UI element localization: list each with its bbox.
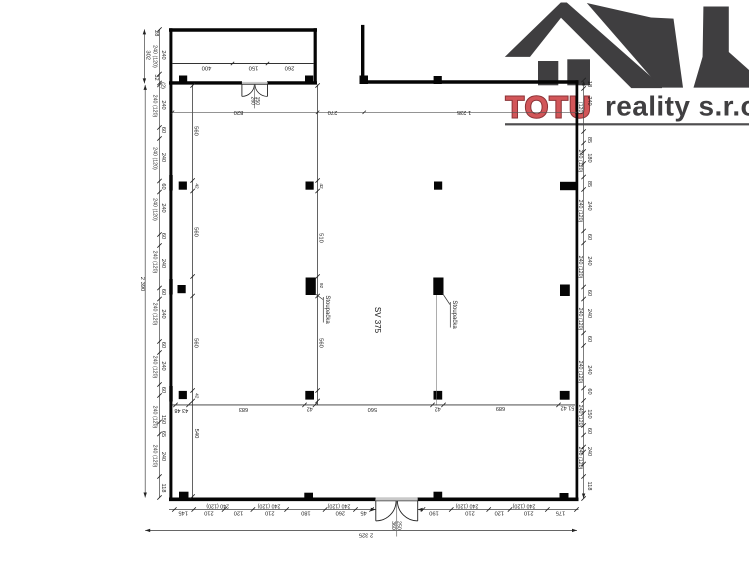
svg-text:510: 510: [317, 233, 323, 243]
svg-text:240 (120): 240 (120): [152, 45, 158, 68]
svg-text:42: 42: [435, 405, 441, 411]
svg-text:683: 683: [239, 406, 248, 412]
svg-text:210: 210: [524, 510, 534, 516]
svg-text:240 (120): 240 (120): [327, 502, 350, 508]
svg-text:240 (120): 240 (120): [152, 251, 158, 274]
svg-text:240 (120): 240 (120): [577, 405, 583, 428]
svg-text:175: 175: [556, 510, 566, 516]
svg-text:60: 60: [586, 234, 592, 240]
svg-text:240 (120): 240 (120): [577, 200, 583, 223]
svg-text:302: 302: [145, 50, 151, 60]
svg-text:240 (120): 240 (120): [577, 361, 583, 384]
svg-text:51 42: 51 42: [561, 404, 575, 410]
svg-text:240 (120): 240 (120): [577, 308, 583, 331]
svg-text:60: 60: [160, 233, 166, 239]
svg-text:240 (120): 240 (120): [206, 502, 229, 508]
svg-text:60: 60: [160, 289, 166, 295]
svg-text:240 (120): 240 (120): [152, 356, 158, 379]
svg-text:240: 240: [160, 203, 166, 212]
svg-text:240: 240: [586, 201, 592, 210]
svg-text:360: 360: [390, 521, 396, 530]
svg-text:60: 60: [160, 342, 166, 348]
svg-text:2 390: 2 390: [139, 277, 145, 292]
svg-text:42: 42: [318, 183, 324, 189]
svg-text:60: 60: [160, 387, 166, 393]
svg-text:240 (120): 240 (120): [577, 256, 583, 279]
svg-text:560: 560: [368, 406, 377, 412]
svg-text:260: 260: [285, 64, 295, 70]
svg-text:240: 240: [160, 100, 166, 109]
svg-text:240 (120): 240 (120): [577, 150, 583, 173]
svg-text:60: 60: [586, 388, 592, 394]
svg-text:240: 240: [586, 96, 592, 105]
svg-text:540: 540: [193, 429, 199, 439]
svg-text:400: 400: [202, 64, 212, 70]
svg-text:Stoupačka: Stoupačka: [324, 295, 330, 324]
svg-text:240 (120): 240 (120): [577, 447, 583, 470]
svg-text:240 (120): 240 (120): [257, 502, 280, 508]
svg-text:120: 120: [495, 510, 505, 516]
svg-text:150: 150: [254, 97, 260, 106]
svg-text:43 48: 43 48: [174, 407, 188, 413]
svg-text:65: 65: [160, 431, 166, 437]
svg-text:240 (120): 240 (120): [152, 303, 158, 326]
svg-text:85: 85: [586, 181, 592, 187]
svg-text:240: 240: [586, 309, 592, 318]
svg-text:240: 240: [160, 309, 166, 318]
svg-text:190: 190: [429, 510, 439, 516]
svg-text:240 (120): 240 (120): [512, 502, 535, 508]
svg-text:92: 92: [318, 283, 324, 289]
svg-text:28: 28: [153, 30, 159, 36]
svg-text:60: 60: [160, 183, 166, 189]
svg-text:240 (120): 240 (120): [152, 406, 158, 429]
svg-text:240: 240: [160, 452, 166, 461]
svg-text:210: 210: [265, 510, 275, 516]
svg-text:560: 560: [193, 126, 199, 136]
svg-text:60: 60: [160, 127, 166, 133]
svg-text:240: 240: [160, 259, 166, 268]
svg-text:240 (120): 240 (120): [152, 445, 158, 468]
svg-text:240: 240: [160, 361, 166, 370]
svg-text:60: 60: [586, 290, 592, 296]
svg-text:150: 150: [249, 64, 259, 70]
svg-text:32: 32: [153, 74, 159, 80]
svg-text:260: 260: [336, 510, 346, 516]
svg-text:42: 42: [307, 405, 313, 411]
svg-text:2 325: 2 325: [359, 531, 374, 537]
svg-text:Stoupačka: Stoupačka: [451, 300, 457, 329]
svg-text:42: 42: [194, 183, 200, 189]
svg-text:180: 180: [301, 510, 311, 516]
svg-text:145: 145: [178, 510, 188, 516]
svg-text:(2): (2): [160, 82, 166, 89]
svg-text:689: 689: [496, 405, 505, 411]
svg-text:(120): (120): [577, 102, 583, 115]
svg-text:85: 85: [586, 137, 592, 143]
svg-text:reality s.r.o.: reality s.r.o.: [605, 91, 749, 122]
svg-text:240: 240: [586, 447, 592, 456]
svg-text:18: 18: [586, 81, 592, 87]
svg-text:120: 120: [234, 510, 244, 516]
svg-text:60: 60: [586, 428, 592, 434]
svg-text:45: 45: [360, 510, 366, 516]
svg-text:210: 210: [204, 510, 214, 516]
svg-text:240: 240: [586, 365, 592, 374]
svg-text:820: 820: [234, 109, 244, 115]
svg-text:250: 250: [396, 521, 402, 530]
svg-text:118: 118: [586, 482, 592, 491]
svg-text:240 (120): 240 (120): [152, 95, 158, 118]
svg-text:560: 560: [193, 338, 199, 348]
svg-text:240: 240: [160, 50, 166, 59]
svg-text:118: 118: [160, 484, 166, 493]
svg-text:560: 560: [193, 227, 199, 237]
svg-text:150: 150: [586, 409, 592, 418]
svg-text:60: 60: [586, 336, 592, 342]
svg-text:560: 560: [317, 338, 323, 348]
svg-text:240 (120): 240 (120): [152, 147, 158, 170]
svg-text:1 235: 1 235: [457, 109, 472, 115]
svg-text:240 (120): 240 (120): [152, 198, 158, 221]
svg-text:150: 150: [160, 415, 166, 424]
svg-text:210: 210: [465, 510, 475, 516]
svg-text:240: 240: [586, 256, 592, 265]
svg-text:42: 42: [194, 393, 200, 399]
svg-text:240: 240: [160, 153, 166, 162]
svg-text:180: 180: [586, 153, 592, 162]
svg-text:240 (120): 240 (120): [455, 502, 478, 508]
svg-text:SV 375: SV 375: [373, 307, 382, 334]
svg-text:270: 270: [328, 109, 338, 115]
